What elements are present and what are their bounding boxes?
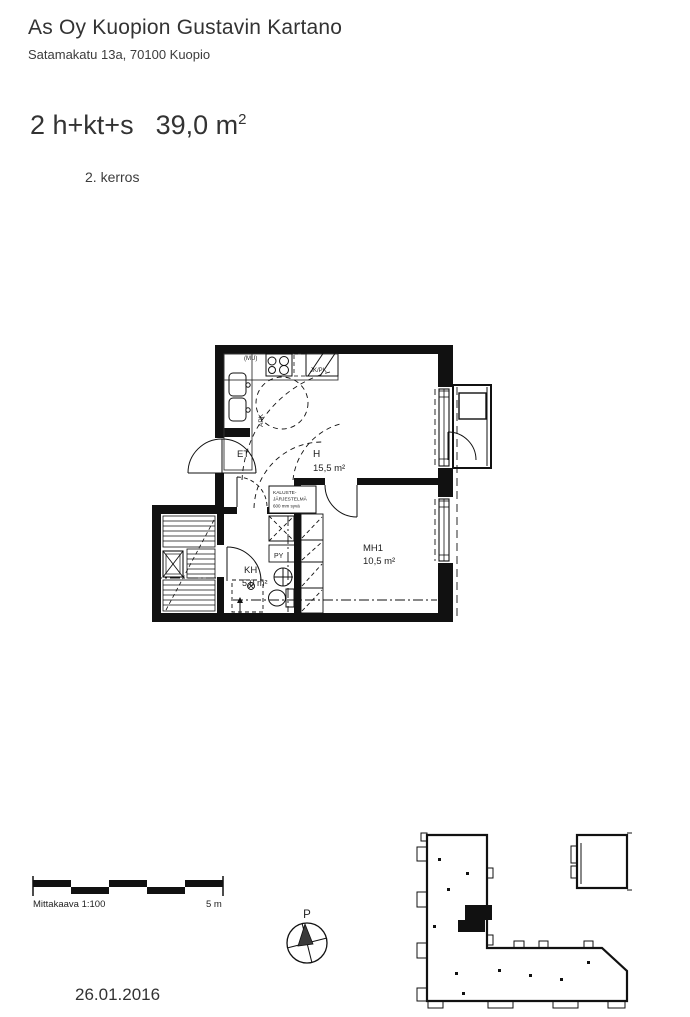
fixture-label-py: PY [274, 553, 284, 560]
site-detail-dots [433, 858, 590, 995]
room-label-mh1: MH1 [363, 543, 383, 554]
floor-plan-drawing: KALUSTE- JÄRJESTELMÄ 600 mm syvä H 15,5 … [0, 0, 690, 1017]
counter-dashes [294, 354, 306, 376]
fixture-label-apk: APK [258, 413, 265, 427]
scale-label: Mittakaava 1:100 [33, 899, 105, 910]
balcony-table [459, 393, 486, 419]
kaluste-annotation: KALUSTE- JÄRJESTELMÄ 600 mm syvä [269, 486, 316, 513]
north-label: P [303, 909, 311, 921]
washbasin [274, 568, 293, 586]
sauna-heater [163, 551, 183, 577]
kaluste-line1: KALUSTE- [273, 490, 297, 496]
room-area-mh1: 10,5 m² [363, 556, 395, 567]
balcony [448, 385, 491, 468]
room-label-et: ET [237, 449, 249, 460]
kaluste-line2: JÄRJESTELMÄ [273, 496, 308, 503]
toilet [269, 589, 295, 607]
north-needle [298, 924, 313, 946]
bedroom-door [325, 485, 357, 517]
site-main-building [427, 835, 627, 1001]
scale-length-label: 5 m [206, 899, 222, 910]
window-h [435, 389, 449, 466]
fixture-label-mu: (MU) [244, 356, 257, 362]
stove [266, 354, 292, 376]
room-label-kh: KH [244, 565, 257, 576]
compass: P [287, 909, 327, 963]
washing-machine-reservation [269, 516, 294, 541]
site-neighbor-building [577, 835, 627, 888]
sauna-benches [163, 516, 215, 611]
wardrobes [301, 514, 323, 613]
site-plan [417, 833, 632, 1008]
room-area-kh: 5,0 m² [242, 578, 268, 588]
window-mh1 [435, 499, 449, 561]
fixture-label-jkpk: JK/PK [310, 368, 327, 374]
room-area-h: 15,5 m² [313, 463, 345, 474]
interior-walls [217, 478, 438, 618]
room-label-h: H [313, 449, 320, 460]
bathroom-door [237, 477, 267, 507]
kaluste-line3: 600 mm syvä [273, 504, 300, 509]
floor-plan-document: { "header": { "title": "As Oy Kuopion Gu… [0, 0, 690, 1017]
scale-bar: Mittakaava 1:100 5 m [33, 876, 223, 910]
